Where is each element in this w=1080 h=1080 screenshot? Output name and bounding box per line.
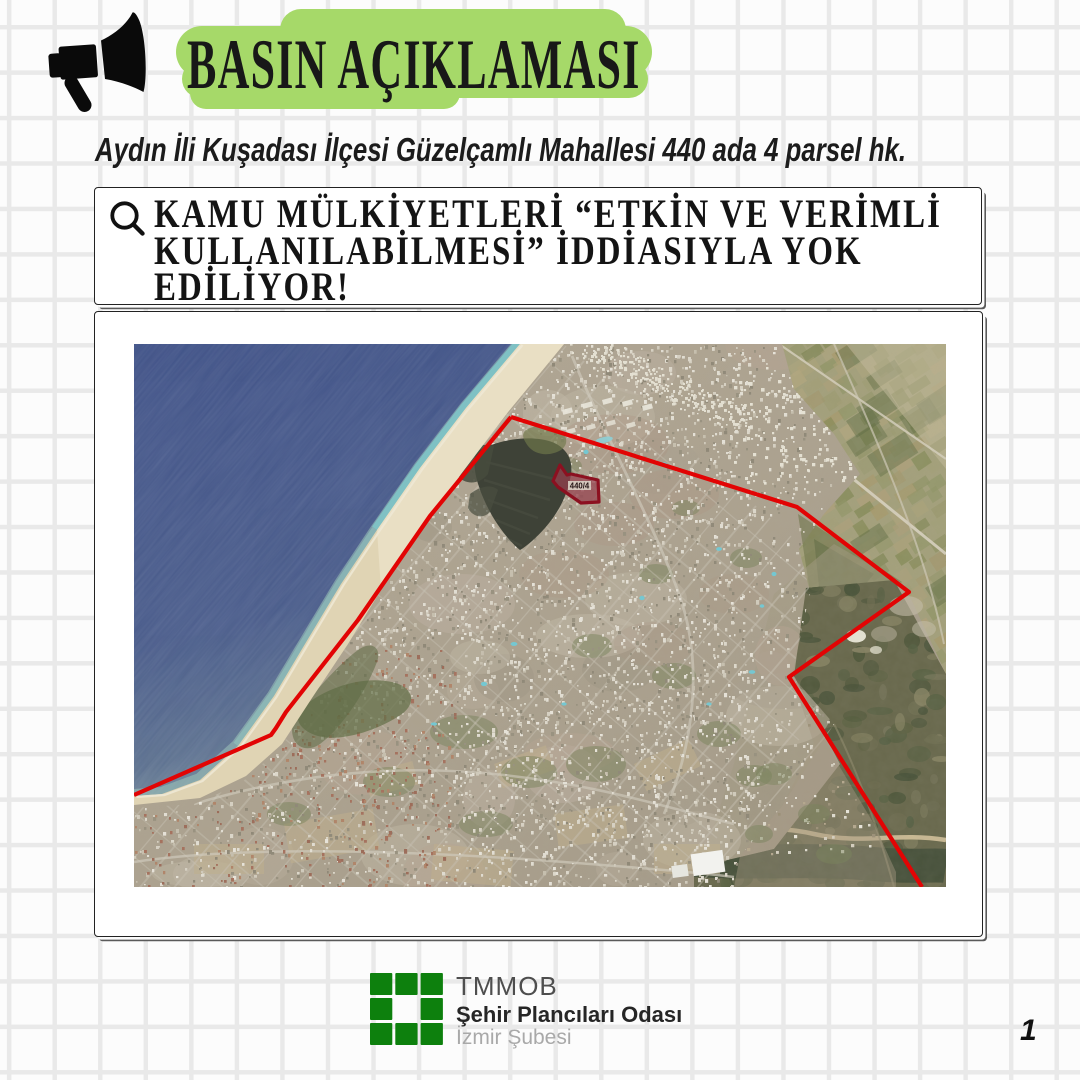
svg-text:440/4: 440/4 (570, 482, 590, 491)
